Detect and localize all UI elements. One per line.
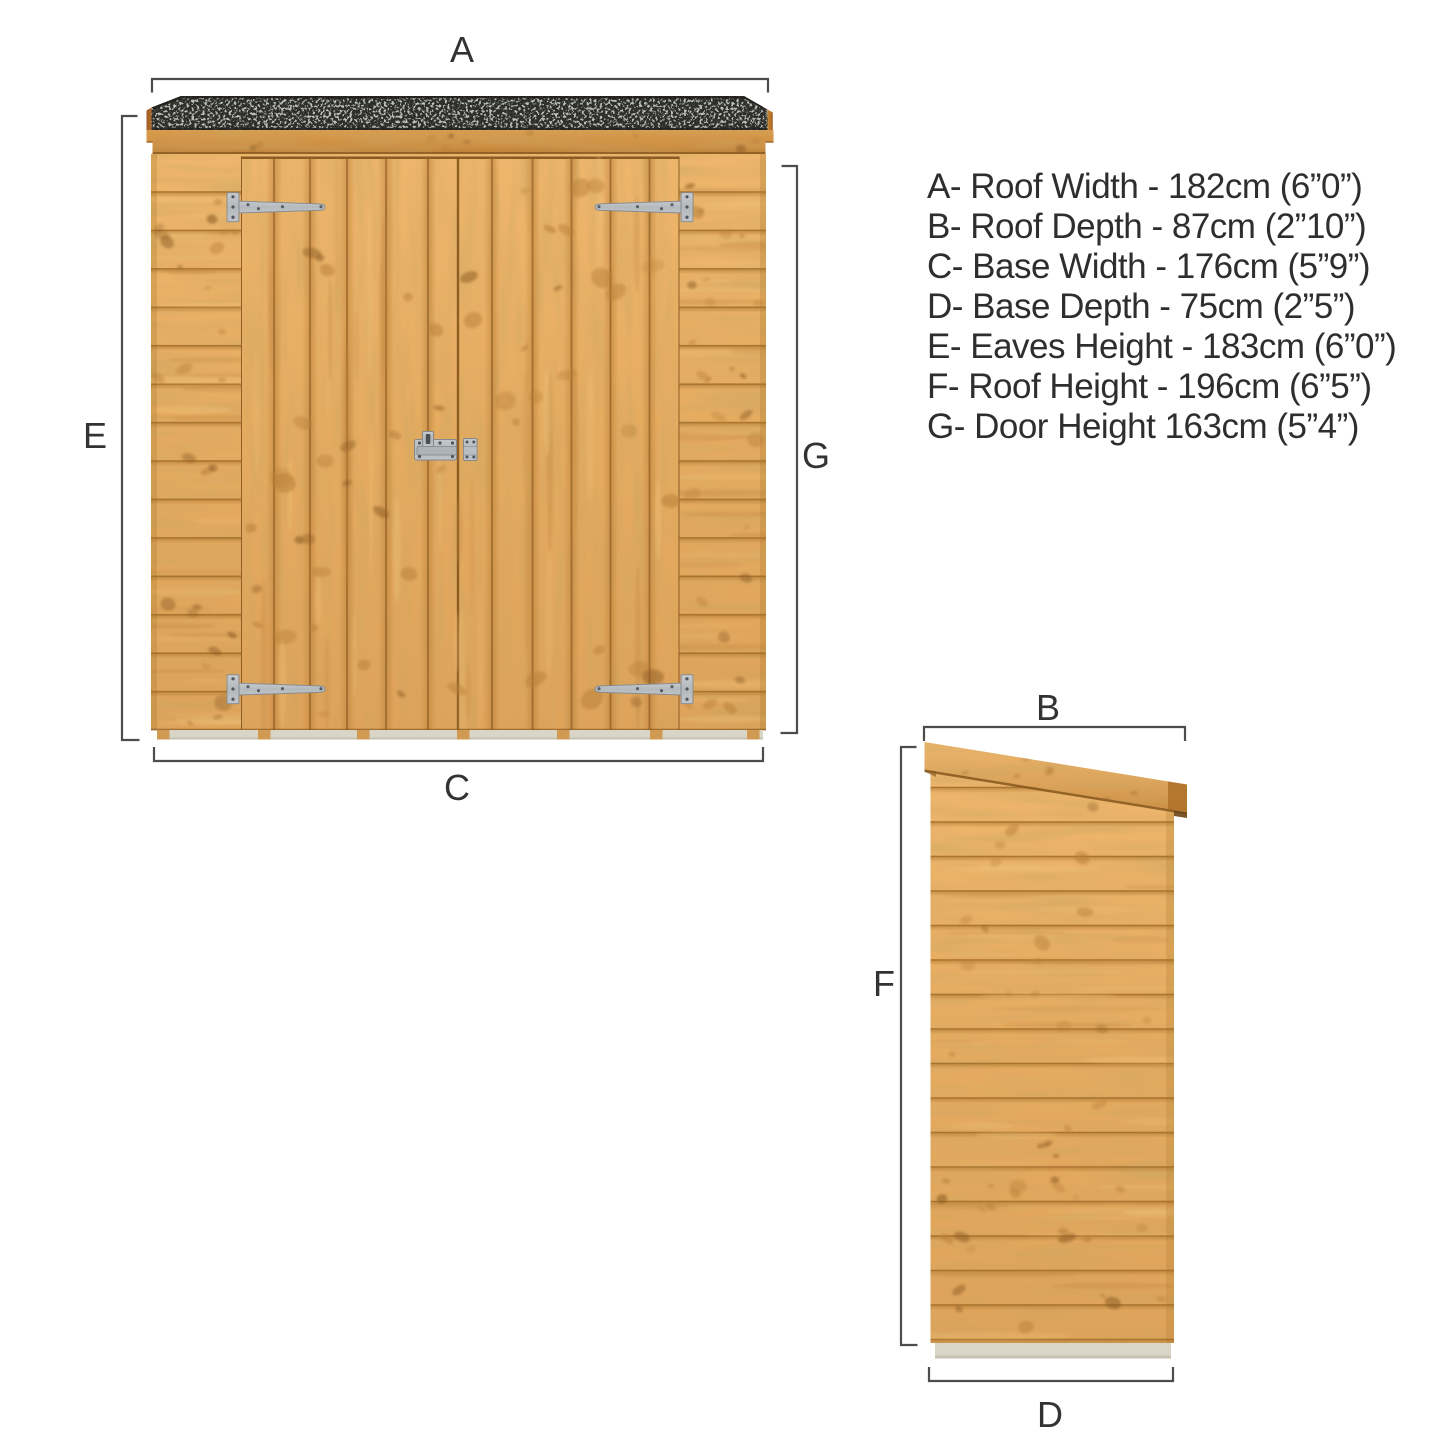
svg-text:A- Roof Width - 182cm (6”0”): A- Roof Width - 182cm (6”0”)	[927, 167, 1362, 206]
svg-text:B- Roof Depth - 87cm (2”10”): B- Roof Depth - 87cm (2”10”)	[927, 207, 1366, 246]
svg-text:E: E	[83, 415, 107, 456]
svg-text:F: F	[873, 963, 895, 1004]
svg-text:C: C	[444, 767, 470, 808]
svg-text:G: G	[802, 435, 830, 476]
svg-text:D: D	[1037, 1394, 1063, 1435]
svg-text:G- Door Height 163cm (5”4”): G- Door Height 163cm (5”4”)	[927, 407, 1359, 446]
svg-text:A: A	[450, 29, 474, 70]
svg-text:D- Base Depth - 75cm (2”5”): D- Base Depth - 75cm (2”5”)	[927, 287, 1355, 326]
svg-text:C- Base Width - 176cm (5”9”): C- Base Width - 176cm (5”9”)	[927, 247, 1370, 286]
svg-text:F- Roof Height - 196cm (6”5”): F- Roof Height - 196cm (6”5”)	[927, 367, 1372, 406]
svg-text:E- Eaves Height - 183cm (6”0”): E- Eaves Height - 183cm (6”0”)	[927, 327, 1396, 366]
svg-text:B: B	[1036, 687, 1060, 728]
